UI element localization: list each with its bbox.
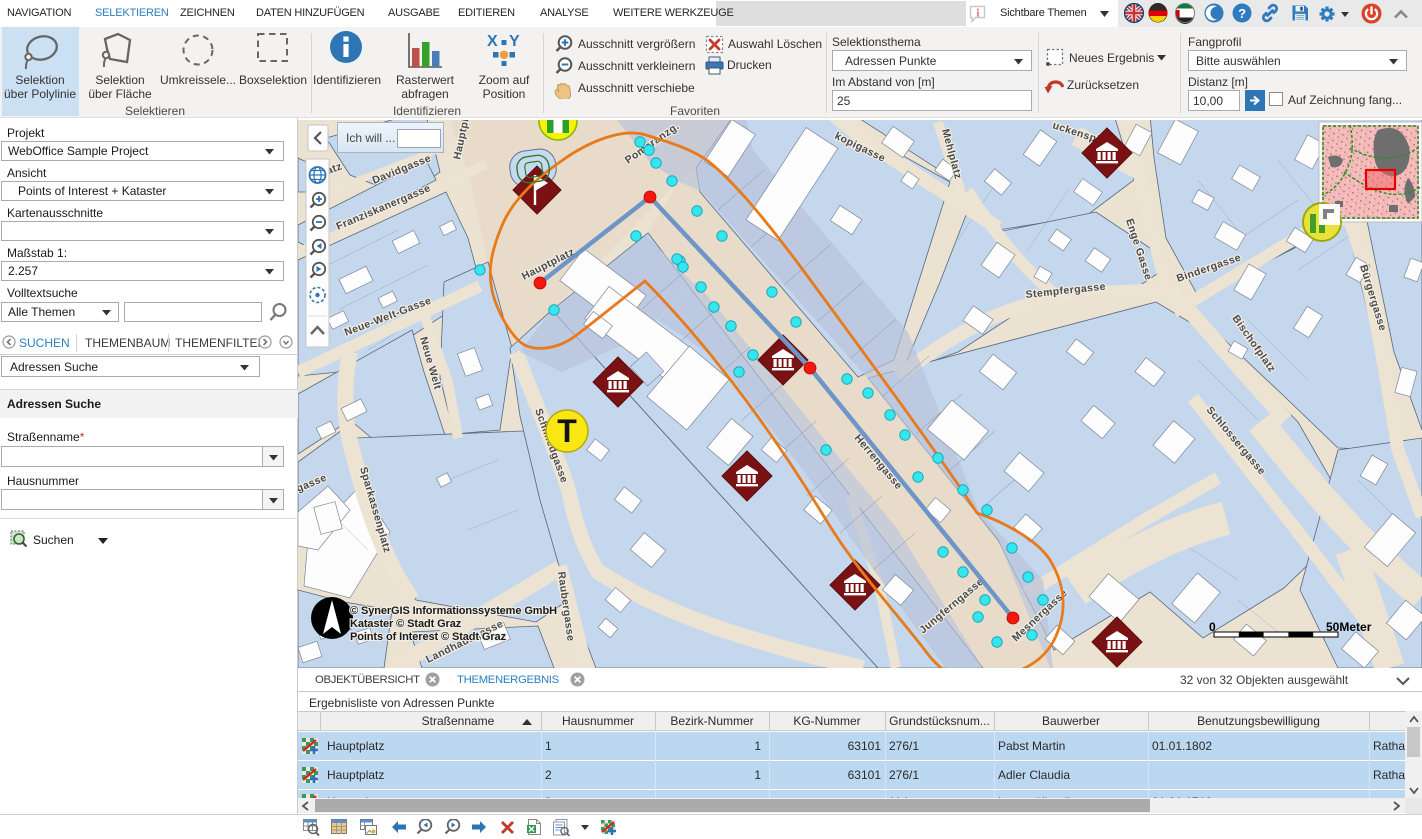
- svg-text:T: T: [557, 413, 577, 449]
- svg-text:X: X: [487, 33, 498, 50]
- svg-text:Kataster © Stadt Graz: Kataster © Stadt Graz: [350, 618, 462, 630]
- svg-text:© SynerGIS Informationssysteme: © SynerGIS Informationssysteme GmbH: [350, 605, 557, 617]
- svg-text:Points of Interest © Stadt Gra: Points of Interest © Stadt Graz: [350, 631, 507, 643]
- svg-text:Y: Y: [509, 33, 520, 50]
- svg-text:?: ?: [1238, 6, 1246, 21]
